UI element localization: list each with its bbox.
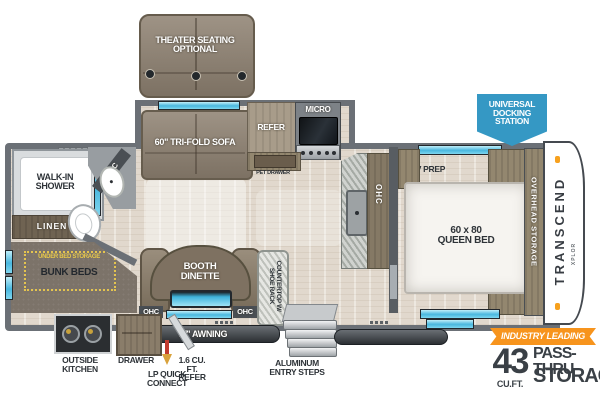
walk-in-shower-label: WALK-IN SHOWER xyxy=(24,173,86,191)
microwave-range-unit: MICRO xyxy=(295,102,341,160)
kitchen-sink xyxy=(346,190,368,236)
theater-seating: THEATER SEATING OPTIONAL xyxy=(139,14,255,98)
storage-unit: CU.FT. xyxy=(487,380,533,389)
sofa-label: 60" TRI-FOLD SOFA xyxy=(145,138,245,147)
rear-window xyxy=(5,250,13,274)
overhead-storage-label: OVERHEAD STORAGE xyxy=(530,177,538,267)
pass-thru-door xyxy=(426,319,474,329)
bedroom-wall xyxy=(389,147,398,313)
bedroom-door xyxy=(390,265,397,299)
microwave-icon xyxy=(299,117,338,145)
drawer-label: DRAWER xyxy=(108,356,164,365)
storage-number: 43 xyxy=(487,344,533,380)
chassis-vent xyxy=(215,321,235,324)
refrigerator: REFER xyxy=(247,102,297,154)
cap-marker-icon xyxy=(555,156,560,163)
storage-badge: 43 CU.FT. PASS-THRU STORAGE xyxy=(487,344,599,396)
cupholder-icon xyxy=(191,71,201,81)
hall-rug xyxy=(256,190,342,246)
cupholder-icon xyxy=(145,69,155,79)
docking-station-label: UNIVERSAL DOCKING STATION xyxy=(477,94,547,126)
pet-drawer-label: PET DRAWER xyxy=(244,171,302,177)
rv-floorplan: THEATER SEATING OPTIONAL 60" TRI-FOLD SO… xyxy=(0,0,600,400)
brand-logo: TRANSCEND xyxy=(553,156,569,306)
dinette-ohc-right-label: OHC xyxy=(233,306,257,318)
lp-connect-icon xyxy=(165,340,169,354)
queen-bed: 60 x 80 QUEEN BED xyxy=(404,182,530,294)
pet-drawer xyxy=(254,155,296,168)
burner-icon xyxy=(84,325,102,343)
trifold-sofa: 60" TRI-FOLD SOFA xyxy=(141,110,253,180)
sofa-window xyxy=(158,101,240,110)
refer-label: REFER xyxy=(250,123,292,132)
countertop-label: COUNTERTOP W/ SHOE RACK xyxy=(261,253,281,319)
micro-label: MICRO xyxy=(296,106,340,114)
rear-window xyxy=(5,276,13,300)
cap-marker-icon xyxy=(555,303,560,310)
storage-line2: STORAGE xyxy=(533,366,599,386)
range-icon xyxy=(296,145,340,160)
sofa-seam xyxy=(145,152,245,154)
chassis-vent xyxy=(370,321,390,324)
nightstand-top xyxy=(488,149,528,185)
under-bed-storage-label: UNDER BED STORAGE xyxy=(27,254,111,260)
theater-seating-label: THEATER SEATING OPTIONAL xyxy=(148,36,242,54)
exterior-drawer xyxy=(116,314,162,356)
entry-steps-label: ALUMINUM ENTRY STEPS xyxy=(262,359,332,376)
mini-refer-label: 1.6 CU. FT. REFER xyxy=(174,356,210,382)
kitchen-ohc-cabinet: OHC xyxy=(367,153,391,269)
outside-kitchen-unit xyxy=(54,314,112,354)
outside-kitchen-label: OUTSIDE KITCHEN xyxy=(48,356,112,373)
booth-dinette-label: BOOTH DINETTE xyxy=(171,262,229,281)
kitchen-ohc-label: OHC xyxy=(374,184,382,205)
burner-icon xyxy=(62,325,80,343)
brand-sub-logo: XPLOR xyxy=(572,234,580,274)
queen-bed-label: 60 x 80 QUEEN BED xyxy=(434,226,498,246)
bedroom-bottom-window xyxy=(420,309,500,319)
cupholder-icon xyxy=(237,71,247,81)
bumper-bar xyxy=(334,329,448,345)
dinette-ohc-right: OHC xyxy=(233,306,257,318)
docking-station-badge: UNIVERSAL DOCKING STATION xyxy=(477,94,547,146)
faucet-icon xyxy=(355,211,359,215)
dinette-table xyxy=(170,290,232,308)
bunk-beds-label: BUNK BEDS xyxy=(27,268,111,278)
slide-footprint xyxy=(146,178,246,254)
entry-step xyxy=(289,347,337,357)
